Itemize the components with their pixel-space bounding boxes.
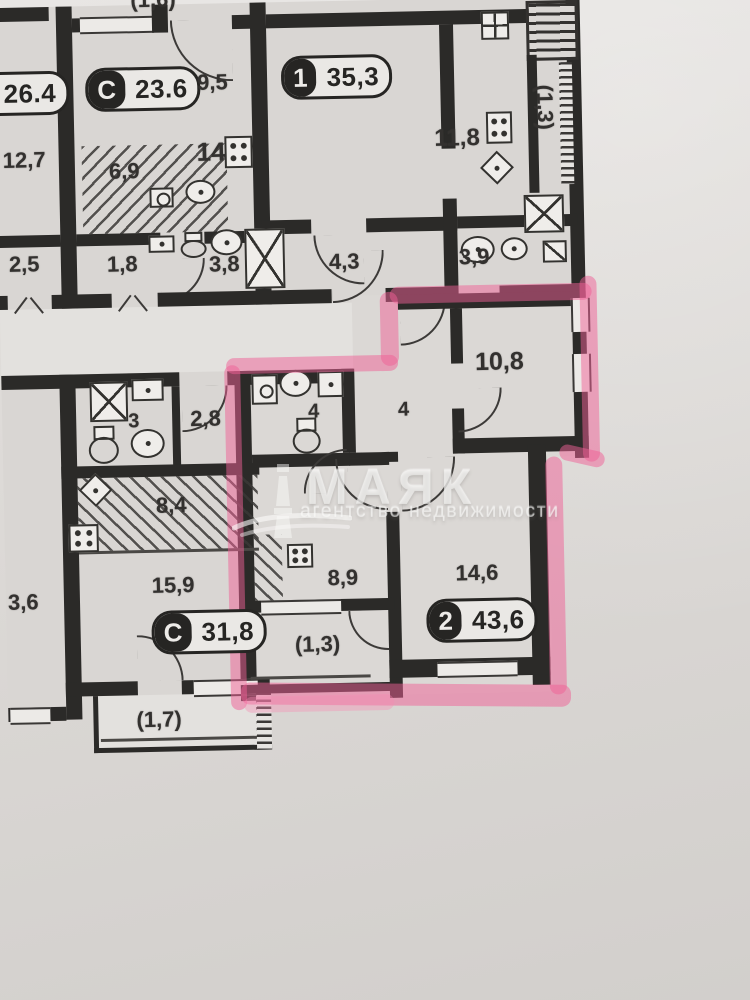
room-label: 12,7: [3, 149, 46, 172]
badge-area: 43,6: [462, 600, 535, 640]
toilet-icon: [88, 426, 119, 465]
wall: [52, 294, 112, 309]
highlight-stroke: [579, 276, 600, 462]
wall: [66, 681, 138, 697]
room-label: 4: [398, 399, 410, 419]
room-label: 4,3: [329, 251, 360, 274]
washer-icon: [149, 187, 173, 207]
wall: [450, 308, 463, 363]
sink-icon: [131, 379, 163, 402]
room-label: 15,9: [151, 574, 194, 597]
room-label: 3,8: [209, 253, 240, 276]
vent-icon: [481, 11, 510, 40]
badge-area: 26.4: [0, 74, 67, 114]
sink-icon: [317, 371, 344, 398]
balcony-rail: [559, 62, 575, 184]
apartment-badge: С 23.6: [85, 66, 201, 112]
room-label: 3,6: [8, 591, 39, 614]
room-label: 9,5: [197, 71, 228, 94]
window: [10, 707, 50, 725]
room-label: 6,9: [109, 160, 140, 183]
stove-icon: [486, 111, 513, 144]
watermark-wave-icon: [232, 508, 352, 538]
badge-area: 35,3: [316, 57, 389, 97]
shower-icon: [89, 381, 128, 422]
entrance-door-mark: [14, 299, 54, 312]
elevator-shaft-icon: [524, 194, 565, 233]
room-label: 3: [128, 411, 140, 431]
wall: [182, 680, 194, 694]
badge-area: 31,8: [191, 612, 264, 652]
room-label: 1,8: [107, 253, 138, 276]
shaft-icon: [543, 240, 567, 262]
room-label: 2,5: [9, 253, 40, 276]
stove-icon: [287, 544, 313, 569]
room-label: (1,6): [130, 0, 176, 11]
window: [261, 599, 341, 616]
badge-type: 1: [284, 58, 317, 97]
stove-icon: [224, 136, 253, 169]
washer-icon: [251, 374, 278, 405]
wall: [0, 235, 61, 248]
room-label: 14,6: [455, 562, 498, 585]
apartment-badge: 2 43,6: [426, 597, 538, 643]
badge-area: 23.6: [125, 69, 198, 109]
wall: [172, 386, 182, 466]
room-label: 3,9: [459, 246, 490, 269]
window: [80, 16, 154, 35]
floor-plan: 26.4 С 23.6 1 35,3 С 31,8 2 43,6 (1,6) 1…: [0, 0, 650, 788]
kitchen-hatch: [254, 534, 283, 601]
highlight-stroke: [244, 694, 394, 713]
room-label: 4: [308, 401, 320, 421]
room-label: 2,8: [190, 407, 221, 430]
room-label: (1,3): [295, 633, 341, 656]
sink-icon: [148, 235, 174, 253]
room-label: 8,9: [327, 567, 358, 590]
badge-type: С: [154, 613, 192, 652]
apartment-badge: 1 35,3: [281, 54, 393, 100]
room-label: 8,4: [156, 494, 187, 517]
toilet-icon: [180, 232, 207, 259]
wall: [0, 7, 49, 22]
room-label: 10,8: [475, 349, 524, 375]
apartment-badge: С 31,8: [151, 609, 267, 655]
highlight-stroke: [545, 456, 567, 694]
toilet-icon: [292, 417, 321, 454]
badge-type: 2: [429, 601, 462, 640]
room-label: 11,8: [434, 126, 480, 151]
stairs: [526, 0, 579, 61]
window: [437, 660, 517, 678]
room-label: 14: [196, 138, 225, 165]
room-label: (1,7): [136, 708, 182, 731]
badge-type: С: [88, 70, 126, 109]
room-label: (1,3): [533, 84, 556, 130]
entrance-door-mark: [118, 297, 158, 310]
stove-icon: [68, 524, 99, 553]
wall: [0, 296, 8, 310]
apartment-badge: 26.4: [0, 71, 70, 117]
shower-icon: [244, 228, 285, 289]
